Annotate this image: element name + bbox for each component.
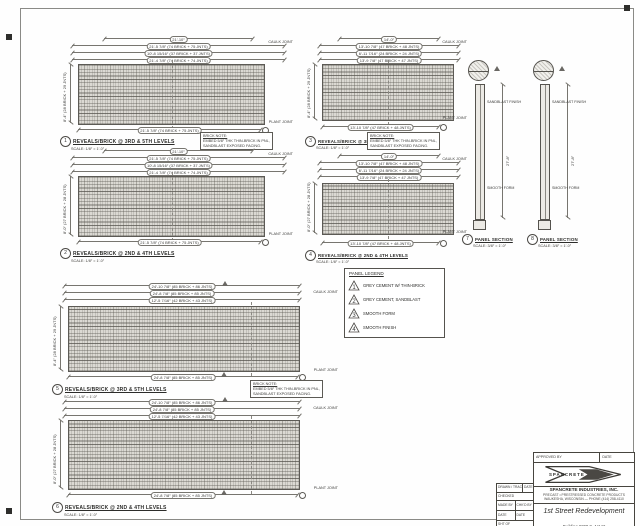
logo-text: SPANCRETE	[549, 472, 585, 477]
triangle-mark-icon	[222, 397, 228, 402]
panel-centerline	[388, 60, 389, 125]
elevation-panel-1: 21′-10″ 21′-5 7/8″ (74 BRICK + 75 JNTS) …	[58, 36, 293, 158]
dim-line: 10′-8 15/16″ (37 BRICK + 37 JNTS)	[72, 52, 285, 53]
section-caption: PANEL SECTION	[475, 237, 513, 242]
detail-tag	[299, 492, 306, 499]
finish-label-top: SANDBLAST FINISH	[487, 100, 521, 104]
detail-bubble-hatched	[468, 60, 489, 81]
panel-centerline	[388, 179, 389, 239]
dim-label: 21′-4 7/8″ (74 BRICK + 74 JNTS)	[146, 57, 211, 64]
drafting-info-table: DRAWN / TRACED DATE CHECKED MADE BY CHK'…	[496, 483, 535, 526]
dim-label: 21′-10″	[169, 36, 187, 43]
dim-line: 21′-5 7/8″ (74 BRICK + 75 JNTS)	[72, 45, 285, 46]
dim-label: 24′-8 7/8″ (85 BRICK + 85 JNTS)	[151, 492, 216, 499]
dim-line: 21′-4 7/8″ (74 BRICK + 74 JNTS)	[72, 59, 285, 60]
vertical-dim-label: 8′-4″ (28 BRICK + 29 JNTS)	[53, 316, 57, 366]
triangle-mark-icon: 2	[348, 294, 360, 305]
elevation-panel-2: 21′-10″ 21′-5 7/8″ (74 BRICK + 75 JNTS) …	[58, 148, 293, 270]
dim-line: 21′-10″	[104, 38, 253, 39]
detail-bubble: 1	[60, 136, 71, 147]
dim-line: 13′-9 7/8″ (47 BRICK + 47 JNTS)	[319, 176, 459, 177]
panel-title: REVEALS/BRICK @ 3RD & 5TH LEVELS	[73, 139, 175, 145]
note-line: EMBED 5/8″ THK THIN-BRICK IN PNL,	[203, 139, 270, 144]
dim-label: 21′-5 7/8″ (74 BRICK + 75 JNTS)	[137, 239, 202, 246]
approval-row: APPROVED BY DATE	[534, 453, 634, 463]
elevation-panel-6: 24′-10 7/8″ (85 BRICK + 86 JNTS) 24′-8 7…	[50, 398, 342, 516]
vertical-dim-label: 8′-4″ (28 BRICK + 29 JNTS)	[63, 72, 67, 122]
dim-label: 24′-8 7/8″ (85 BRICK + 85 JNTS)	[150, 406, 215, 413]
panel-scale: SCALE: 1/8″ = 1′-0″	[316, 260, 349, 264]
detail-tag	[440, 240, 447, 247]
dim-label: 24′-10 7/8″ (85 BRICK + 86 JNTS)	[149, 283, 216, 290]
detail-tag	[262, 239, 269, 246]
triangle-mark-icon	[494, 66, 500, 71]
registration-mark	[624, 5, 630, 11]
dim-label: 12′-5 7/16″ (42 BRICK + 43 JNTS)	[149, 297, 216, 304]
triangle-mark-icon	[221, 372, 227, 377]
panel-centerline	[172, 172, 173, 241]
dim-line: 6′-11 7/16″ (24 BRICK + 24 JNTS)	[319, 52, 459, 53]
dim-line: 13′-10 7/8″ (47 BRICK + 48 JNTS)	[322, 126, 439, 127]
legend-item: 3 SMOOTH FORM	[348, 306, 441, 320]
dim-label: 13′-10 7/8″ (47 BRICK + 48 JNTS)	[347, 240, 414, 247]
dim-label: 14′-0″	[381, 153, 397, 160]
section-foot	[473, 220, 486, 230]
triangle-mark-icon	[559, 66, 565, 71]
detail-bubble-hatched	[533, 60, 554, 81]
dim-line: 12′-5 7/16″ (42 BRICK + 43 JNTS)	[64, 299, 300, 300]
joint-label-bottom: PLANT JOINT	[314, 486, 338, 490]
legend-label: GREY CEMENT, SANDBLAST	[363, 297, 420, 302]
triangle-mark-icon: 3	[348, 308, 360, 319]
sheet-number: SHT OF	[497, 521, 534, 526]
elevation-panel-4: 14′-0″ 13′-10 7/8″ (47 BRICK + 48 JNTS) …	[305, 150, 467, 262]
finish-label-bottom: SMOOTH FORM	[487, 186, 514, 190]
dim-line: 21′-5 7/8″ (74 BRICK + 75 JNTS)	[72, 157, 285, 158]
dim-line: 10′-8 15/16″ (37 BRICK + 37 JNTS)	[72, 164, 285, 165]
approved-by-label: APPROVED BY	[534, 453, 599, 462]
finish-legend: PANEL LEGEND 1 GREY CEMENT W/ THIN-BRICK…	[344, 268, 445, 338]
drawn-label: DRAWN / TRACED	[497, 484, 522, 492]
finish-label-bottom: SMOOTH FORM	[552, 186, 579, 190]
vertical-dim-label: 8′-4″ (28 BRICK + 29 JNTS)	[307, 68, 311, 118]
checked-by-cell: CHK'D BY	[516, 501, 535, 511]
vertical-dim-line	[70, 176, 71, 235]
dim-line: 6′-11 7/16″ (24 BRICK + 24 JNTS)	[319, 169, 459, 170]
vertical-dim-line	[70, 64, 71, 123]
detail-bubble: 2	[60, 248, 71, 259]
note-box: BRICK NOTE: EMBED 5/8″ THK THIN-BRICK IN…	[250, 380, 323, 398]
vertical-dim-label: 8′-0″ (27 BRICK + 28 JNTS)	[307, 182, 311, 232]
dim-label: 13′-9 7/8″ (47 BRICK + 47 JNTS)	[357, 174, 422, 181]
dim-label: 10′-8 15/16″ (37 BRICK + 37 JNTS)	[144, 162, 213, 169]
brick-elevation	[78, 64, 265, 125]
panel-title: REVEALS/BRICK @ 2ND & 4TH LEVELS	[73, 251, 175, 257]
section-caption: PANEL SECTION	[540, 237, 578, 242]
title-block: APPROVED BY DATE SPANCRETE SPANCRETE IND…	[533, 452, 635, 526]
panel-title-row: 2 REVEALS/BRICK @ 2ND & 4TH LEVELS	[60, 248, 175, 259]
panel-centerline	[172, 60, 173, 129]
dim-label: 21′-5 7/8″ (74 BRICK + 75 JNTS)	[146, 43, 211, 50]
vertical-dim-line	[60, 306, 61, 370]
dim-line: 24′-8 7/8″ (85 BRICK + 85 JNTS)	[68, 494, 298, 495]
legend-item: 2 GREY CEMENT, SANDBLAST	[348, 292, 441, 306]
drawing-sheet: 21′-10″ 21′-5 7/8″ (74 BRICK + 75 JNTS) …	[0, 0, 640, 526]
elevation-panel-3: 14′-0″ 13′-10 7/8″ (47 BRICK + 48 JNTS) …	[305, 36, 467, 158]
panel-title-row: 5 REVEALS/BRICK @ 3RD & 5TH LEVELS	[52, 384, 167, 395]
brick-elevation	[68, 420, 300, 490]
dim-line: 12′-5 7/16″ (42 BRICK + 43 JNTS)	[64, 415, 300, 416]
dim-line: 24′-8 7/8″ (85 BRICK + 85 JNTS)	[68, 376, 298, 377]
vertical-dim-label: 8′-0″ (27 BRICK + 28 JNTS)	[63, 184, 67, 234]
joint-label-top: CAULK JOINT	[442, 40, 467, 44]
panel-title: REVEALS/BRICK @ 2ND & 4TH LEVELS	[65, 505, 167, 511]
dim-label: 24′-8 7/8″ (85 BRICK + 85 JNTS)	[150, 290, 215, 297]
date-cell: DATE	[516, 511, 535, 520]
panel-section-2: 27′-8″ SANDBLAST FINISH SMOOTH FORM 8 PA…	[527, 58, 585, 250]
dim-label: 13′-10 7/8″ (47 BRICK + 48 JNTS)	[356, 43, 423, 50]
legend-title: PANEL LEGEND	[349, 271, 441, 276]
section-column	[475, 84, 485, 220]
dim-label: 12′-5 7/16″ (42 BRICK + 43 JNTS)	[149, 413, 216, 420]
detail-bubble: 3	[305, 136, 316, 147]
vertical-dim-line	[314, 64, 315, 119]
dim-label: 14′-0″	[381, 36, 397, 43]
section-scale: SCALE: 3/8″ = 1′-0″	[473, 244, 506, 248]
note-line: SANDBLAST EXPOSED FACING.	[253, 392, 320, 397]
dim-line: 13′-10 7/8″ (47 BRICK + 48 JNTS)	[319, 162, 459, 163]
registration-mark	[6, 34, 12, 40]
joint-label-top: CAULK JOINT	[268, 40, 293, 44]
dim-label: 6′-11 7/16″ (24 BRICK + 24 JNTS)	[356, 50, 422, 57]
dim-line: 13′-10 7/8″ (47 BRICK + 48 JNTS)	[322, 242, 439, 243]
project-name: 1st Street Redevelopment	[534, 503, 634, 522]
dim-line: 21′-5 7/8″ (74 BRICK + 75 JNTS)	[78, 129, 261, 130]
dim-label: 10′-8 15/16″ (37 BRICK + 37 JNTS)	[144, 50, 213, 57]
legend-item: 1 GREY CEMENT W/ THIN-BRICK	[348, 278, 441, 292]
dim-label: 21′-10″	[169, 148, 187, 155]
dim-line: 24′-8 7/8″ (85 BRICK + 85 JNTS)	[64, 408, 300, 409]
vertical-dim-line	[314, 183, 315, 233]
panel-title: REVEALS/BRICK @ 3RD & 5TH LEVELS	[65, 387, 167, 393]
dim-line: 14′-0″	[339, 155, 439, 156]
dim-line: 14′-0″	[339, 38, 439, 39]
detail-bubble: 7	[462, 234, 473, 245]
detail-tag	[440, 124, 447, 131]
date-cell: DATE	[497, 511, 516, 520]
detail-bubble: 5	[52, 384, 63, 395]
vertical-dim-line	[60, 420, 61, 488]
joint-label-top: CAULK JOINT	[268, 152, 293, 156]
panel-centerline	[251, 302, 252, 376]
detail-bubble: 4	[305, 250, 316, 261]
vertical-dim-label: 27′-8″	[506, 156, 510, 166]
brick-elevation	[322, 183, 454, 235]
dim-label: 13′-10 7/8″ (47 BRICK + 48 JNTS)	[356, 160, 423, 167]
panel-section-1: 27′-8″ SANDBLAST FINISH SMOOTH FORM 7 PA…	[462, 58, 520, 250]
joint-label-bottom: PLANT JOINT	[269, 232, 293, 236]
drawn-row: DRAWN / TRACED DATE	[497, 484, 534, 493]
brick-elevation	[68, 306, 300, 372]
dim-line: 21′-5 7/8″ (74 BRICK + 75 JNTS)	[78, 241, 261, 242]
joint-label-bottom: PLANT JOINT	[314, 368, 338, 372]
elevation-panel-5: 24′-10 7/8″ (85 BRICK + 86 JNTS) 24′-8 7…	[50, 282, 342, 400]
note-box: BRICK NOTE: EMBED 5/8″ THK THIN-BRICK IN…	[367, 132, 440, 150]
vertical-dim-label: 27′-8″	[571, 156, 575, 166]
date-label: DATE	[599, 453, 634, 462]
triangle-mark-icon: 1	[348, 280, 360, 291]
section-column	[540, 84, 550, 220]
dim-label: 24′-8 7/8″ (85 BRICK + 85 JNTS)	[151, 374, 216, 381]
triangle-mark-icon	[222, 281, 228, 286]
registration-mark	[6, 508, 12, 514]
section-scale: SCALE: 3/8″ = 1′-0″	[538, 244, 571, 248]
dim-label: 21′-5 7/8″ (74 BRICK + 75 JNTS)	[146, 155, 211, 162]
dim-label: 21′-5 7/8″ (74 BRICK + 75 JNTS)	[137, 127, 202, 134]
note-line: EMBED 5/8″ THK THIN-BRICK IN PNL,	[370, 139, 437, 144]
triangle-mark-icon: 4	[348, 322, 360, 333]
company-address-line2: WAUKESHA, WISCONSIN — PHONE (414) 258-41…	[534, 497, 634, 501]
detail-bubble: 6	[52, 502, 63, 513]
panel-centerline	[251, 416, 252, 494]
dim-label: 13′-9 7/8″ (47 BRICK + 47 JNTS)	[357, 57, 422, 64]
joint-label-top: CAULK JOINT	[313, 406, 338, 410]
dim-label: 13′-10 7/8″ (47 BRICK + 48 JNTS)	[347, 124, 414, 131]
dim-label: 21′-4 7/8″ (74 BRICK + 74 JNTS)	[146, 169, 211, 176]
joint-label-top: CAULK JOINT	[313, 290, 338, 294]
dim-label: 6′-11 7/16″ (24 BRICK + 24 JNTS)	[356, 167, 422, 174]
legend-label: SMOOTH FORM	[363, 311, 395, 316]
dim-line: 13′-10 7/8″ (47 BRICK + 48 JNTS)	[319, 45, 459, 46]
legend-item: 4 SMOOTH FINISH	[348, 320, 441, 334]
legend-label: SMOOTH FINISH	[363, 325, 396, 330]
dim-label: 24′-10 7/8″ (85 BRICK + 86 JNTS)	[149, 399, 216, 406]
signoff-grid: MADE BY CHK'D BY DATE DATE	[497, 501, 534, 521]
dim-line: 21′-10″	[104, 150, 253, 151]
panel-scale: SCALE: 1/8″ = 1′-0″	[64, 513, 97, 517]
finish-label-top: SANDBLAST FINISH	[552, 100, 586, 104]
vertical-dim-label: 8′-0″ (27 BRICK + 28 JNTS)	[53, 434, 57, 484]
company-logo: SPANCRETE	[534, 463, 634, 487]
triangle-mark-icon	[221, 490, 227, 495]
section-foot	[538, 220, 551, 230]
legend-label: GREY CEMENT W/ THIN-BRICK	[363, 283, 425, 288]
detail-bubble: 8	[527, 234, 538, 245]
dim-line: 24′-10 7/8″ (85 BRICK + 86 JNTS)	[64, 401, 300, 402]
note-line: SANDBLAST EXPOSED FACING.	[370, 144, 437, 149]
dim-line: 13′-9 7/8″ (47 BRICK + 47 JNTS)	[319, 59, 459, 60]
panel-scale: SCALE: 1/8″ = 1′-0″	[71, 259, 104, 263]
made-by-cell: MADE BY	[497, 501, 516, 511]
brick-elevation	[78, 176, 265, 237]
panel-title-row: 1 REVEALS/BRICK @ 3RD & 5TH LEVELS	[60, 136, 175, 147]
joint-label-bottom: PLANT JOINT	[269, 120, 293, 124]
panel-title: REVEALS/BRICK @ 2ND & 4TH LEVELS	[318, 253, 408, 258]
note-line: EMBED 5/8″ THK THIN-BRICK IN PNL,	[253, 387, 320, 392]
brick-elevation	[322, 64, 454, 121]
dim-line: 24′-8 7/8″ (85 BRICK + 85 JNTS)	[64, 292, 300, 293]
checked-label: CHECKED	[497, 493, 534, 501]
dim-line: 24′-10 7/8″ (85 BRICK + 86 JNTS)	[64, 285, 300, 286]
panel-title-row: 6 REVEALS/BRICK @ 2ND & 4TH LEVELS	[52, 502, 167, 513]
dim-line: 21′-4 7/8″ (74 BRICK + 74 JNTS)	[72, 171, 285, 172]
